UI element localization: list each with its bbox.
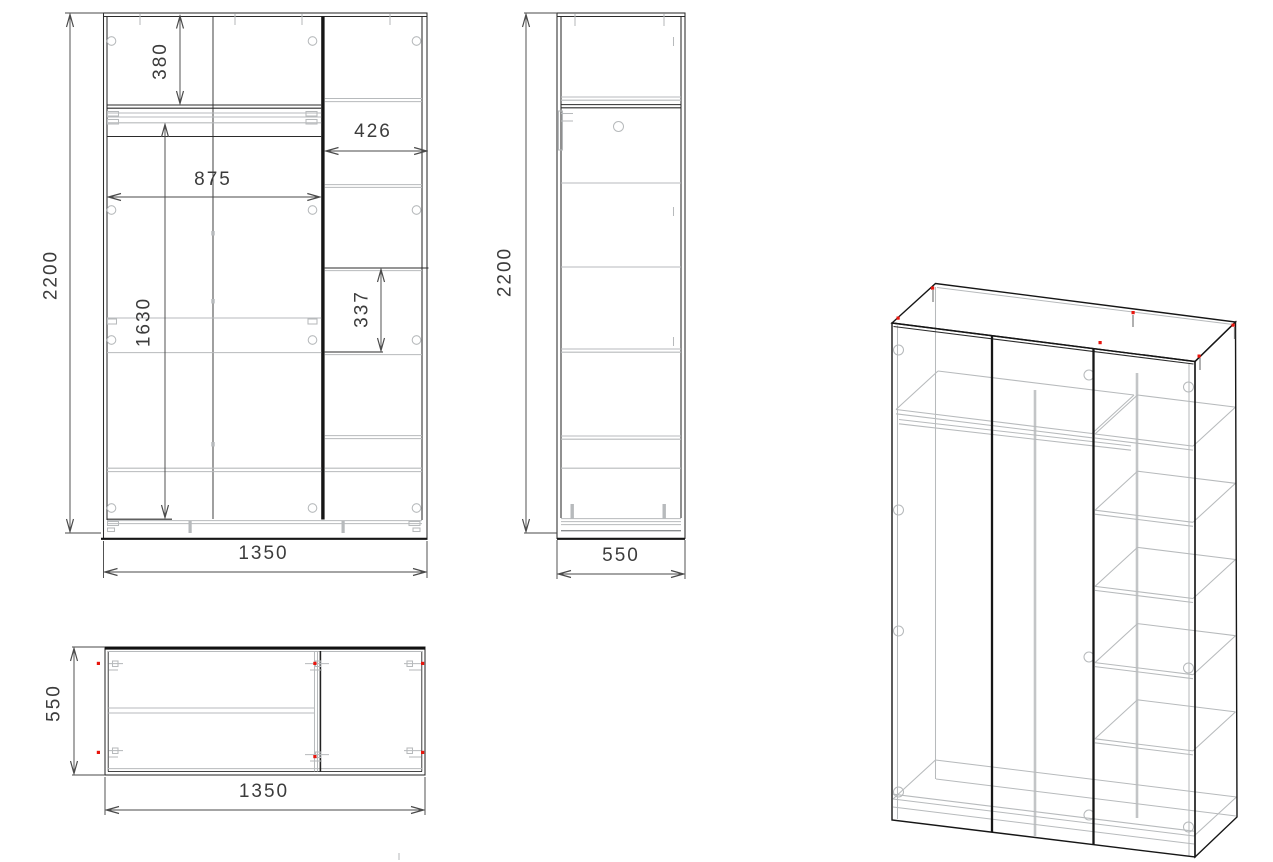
- dimension-front-height: 2200: [41, 13, 104, 533]
- front-view: 2200 380 1630 337 875 426 1350: [41, 13, 429, 578]
- iso-outline: [892, 284, 1237, 858]
- top-shelf-label: 380: [150, 42, 171, 80]
- top-view-rail: [108, 708, 314, 713]
- side-depth-label: 550: [602, 545, 640, 566]
- dimension-front-width: 1350: [104, 541, 428, 578]
- plan-width-label: 1350: [239, 781, 289, 802]
- front-view-base: [107, 468, 422, 533]
- front-view-right-section: [325, 99, 429, 439]
- side-view-outline: [557, 13, 685, 539]
- side-view-base: [561, 504, 681, 531]
- front-view-outline: [101, 13, 428, 539]
- iso-interior-wireframe: [893, 287, 1237, 856]
- dimension-side-height: 2200: [495, 13, 558, 533]
- isometric-view: [892, 284, 1237, 858]
- side-height-label: 2200: [495, 247, 516, 297]
- shelf-spacing-label: 337: [352, 290, 373, 328]
- top-view-outline: [105, 647, 425, 775]
- top-view: 550 1350: [44, 647, 426, 815]
- dimension-plan-width: 1350: [105, 777, 425, 815]
- technical-drawing-canvas: 2200 380 1630 337 875 426 1350: [0, 0, 1273, 862]
- front-width-label: 1350: [238, 543, 288, 564]
- dimension-right-section-width: 426: [326, 121, 427, 151]
- front-height-label: 2200: [41, 250, 62, 300]
- plan-depth-label: 550: [44, 684, 65, 722]
- side-view: 2200 550: [495, 13, 686, 579]
- left-section-width-label: 875: [194, 169, 232, 190]
- dimension-left-section-width: 875: [109, 169, 320, 197]
- dimension-side-depth: 550: [557, 540, 685, 579]
- dimension-rail-clearance: 1630: [134, 125, 166, 518]
- top-view-hardware: [97, 661, 424, 761]
- right-section-width-label: 426: [354, 121, 392, 142]
- dimension-plan-depth: 550: [44, 647, 106, 775]
- front-view-left-section: [107, 105, 321, 447]
- iso-top-fittings: [897, 287, 1235, 371]
- side-view-shelf-edges: [559, 37, 682, 468]
- dimension-top-shelf: 380: [150, 16, 180, 104]
- rail-clearance-label: 1630: [134, 297, 155, 347]
- dimension-shelf-spacing: 337: [352, 270, 382, 351]
